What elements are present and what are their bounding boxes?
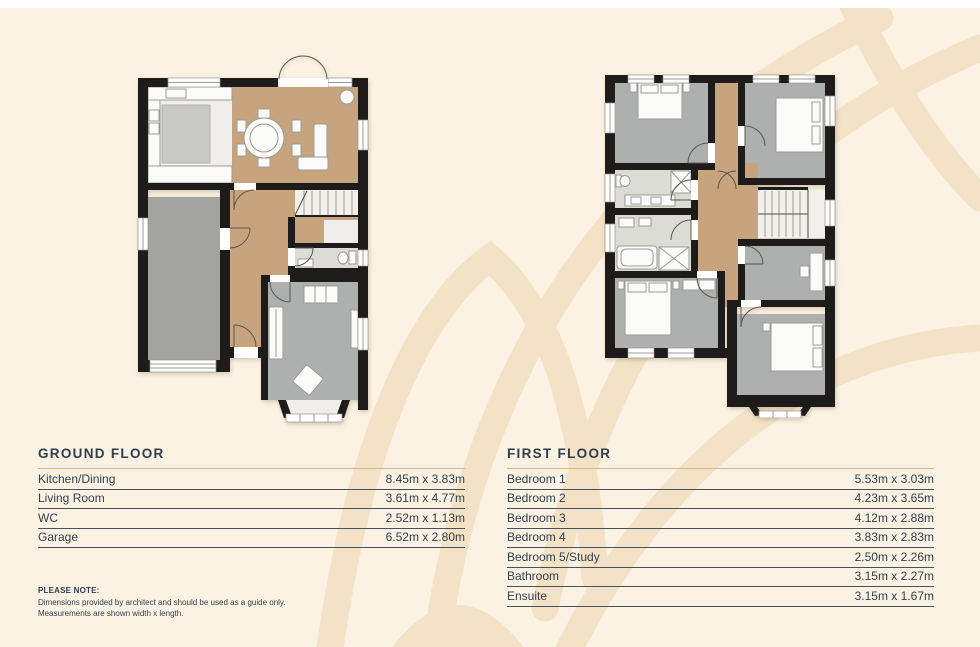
- first-floor-title: FIRST FLOOR: [507, 446, 934, 469]
- note-line-1: Dimensions provided by architect and sho…: [38, 597, 286, 608]
- room-size: 3.83m x 2.83m: [855, 530, 934, 544]
- room-name: Bedroom 5/Study: [507, 550, 600, 564]
- room-size: 3.15m x 2.27m: [855, 569, 934, 583]
- table-row: Bedroom 34.12m x 2.88m: [507, 509, 934, 529]
- room-size: 8.45m x 3.83m: [386, 472, 465, 486]
- plant: [340, 90, 354, 104]
- bedroom-3-bed: [763, 323, 823, 371]
- ground-floor-rows: Kitchen/Dining8.45m x 3.83mLiving Room3.…: [38, 469, 465, 548]
- room-name: Garage: [38, 530, 78, 544]
- first-floor-plan: [593, 68, 843, 418]
- room-name: Bedroom 2: [507, 491, 566, 505]
- first-floor-table: FIRST FLOOR Bedroom 15.53m x 3.03mBedroo…: [507, 446, 934, 607]
- room-size: 4.23m x 3.65m: [855, 491, 934, 505]
- table-row: Bathroom3.15m x 2.27m: [507, 568, 934, 588]
- room-size: 2.50m x 2.26m: [855, 550, 934, 564]
- garage-area: [148, 197, 220, 360]
- stairs: [758, 190, 808, 238]
- ground-floor-plan: [128, 50, 380, 432]
- table-row: Bedroom 24.23m x 3.65m: [507, 490, 934, 510]
- table-row: Bedroom 15.53m x 3.03m: [507, 470, 934, 490]
- table-row: Ensuite3.15m x 1.67m: [507, 587, 934, 607]
- table-row: WC2.52m x 1.13m: [38, 509, 465, 529]
- room-size: 5.53m x 3.03m: [855, 472, 934, 486]
- room-size: 3.61m x 4.77m: [386, 491, 465, 505]
- room-size: 6.52m x 2.80m: [386, 530, 465, 544]
- first-floor-rows: Bedroom 15.53m x 3.03mBedroom 24.23m x 3…: [507, 469, 934, 607]
- room-name: Bedroom 3: [507, 511, 566, 525]
- room-size: 4.12m x 2.88m: [855, 511, 934, 525]
- bedroom-2-bed: [776, 98, 823, 152]
- room-name: Living Room: [38, 491, 105, 505]
- note-heading: PLEASE NOTE:: [38, 585, 286, 596]
- ground-floor-title: GROUND FLOOR: [38, 446, 465, 469]
- room-name: Bedroom 1: [507, 472, 566, 486]
- disclaimer-note: PLEASE NOTE: Dimensions provided by arch…: [38, 585, 286, 619]
- room-name: WC: [38, 511, 58, 525]
- ground-floor-table: GROUND FLOOR Kitchen/Dining8.45m x 3.83m…: [38, 446, 465, 548]
- room-name: Kitchen/Dining: [38, 472, 115, 486]
- room-name: Ensuite: [507, 589, 547, 603]
- table-row: Kitchen/Dining8.45m x 3.83m: [38, 470, 465, 490]
- room-size: 2.52m x 1.13m: [386, 511, 465, 525]
- table-row: Garage6.52m x 2.80m: [38, 529, 465, 549]
- room-size: 3.15m x 1.67m: [855, 589, 934, 603]
- bedroom-1-bed: [630, 83, 690, 119]
- table-row: Bedroom 43.83m x 2.83m: [507, 529, 934, 549]
- table-row: Living Room3.61m x 4.77m: [38, 490, 465, 510]
- table-row: Bedroom 5/Study2.50m x 2.26m: [507, 548, 934, 568]
- note-line-2: Measurements are shown width x length.: [38, 608, 286, 619]
- room-name: Bathroom: [507, 569, 559, 583]
- room-name: Bedroom 4: [507, 530, 566, 544]
